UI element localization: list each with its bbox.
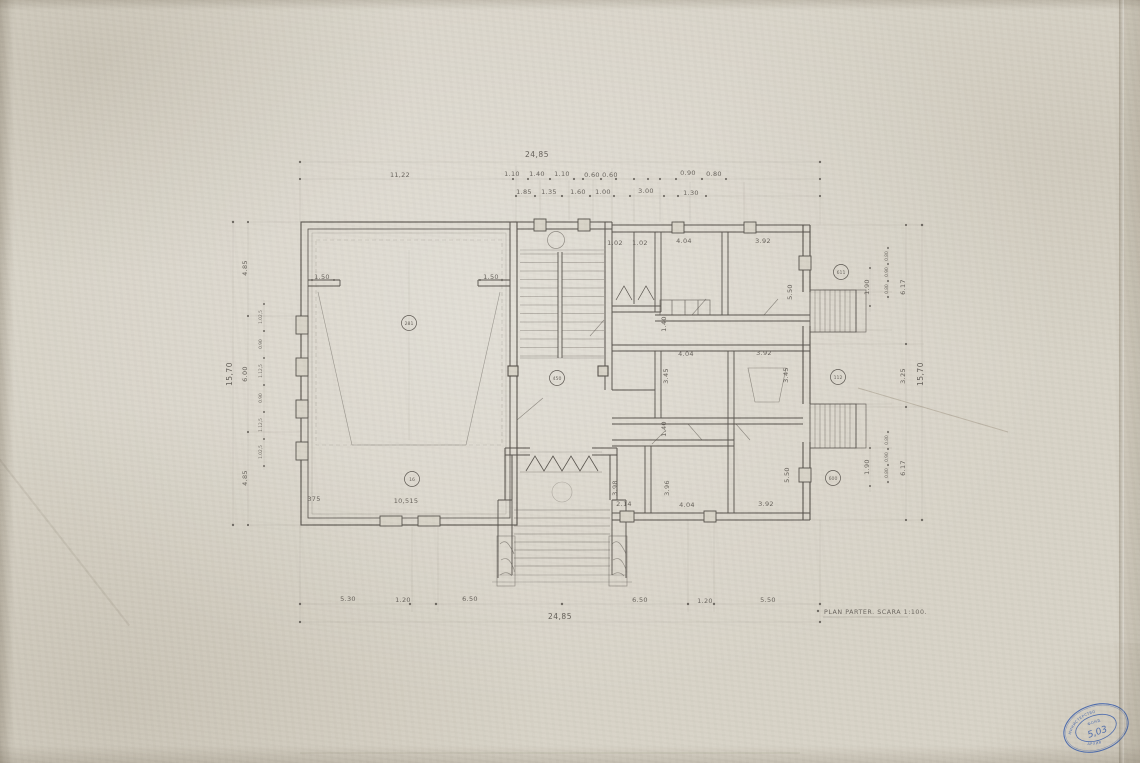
room-label: 1.02 — [632, 239, 648, 247]
dim-label: 4.85 — [241, 470, 249, 486]
room-label: 3.96 — [663, 480, 671, 496]
room-tag: 281 — [405, 321, 414, 327]
room-tag: 450 — [553, 376, 562, 382]
room-label: 5.50 — [786, 284, 794, 300]
dim-label: 1.02,5 — [258, 445, 264, 459]
dim-label: 1.40 — [529, 170, 545, 178]
exterior-stairs — [810, 290, 866, 448]
dim-label: 1.90 — [863, 459, 871, 475]
dim-label: 0.90 — [884, 267, 890, 277]
porch-planters — [497, 536, 627, 586]
dim-label: 4.85 — [241, 260, 249, 276]
room-tag-texts: 281 16 450 611 112 600 — [405, 270, 846, 483]
dim-label: 3.25 — [899, 368, 907, 384]
dim-label: 15,70 — [225, 362, 234, 386]
main-staircase — [520, 232, 604, 359]
dim-label: 24,85 — [548, 612, 572, 621]
room-tag: 112 — [834, 375, 843, 381]
dim-label: 1.20 — [395, 596, 411, 604]
room-label: 3.92 — [758, 500, 774, 508]
room-tag: 600 — [829, 476, 838, 482]
room-label: 3.92 — [755, 237, 771, 245]
scanned-drawing-sheet: 281 16 450 611 112 600 24,85 11,22 1.10 … — [0, 0, 1140, 763]
room-label: 1.40 — [660, 316, 668, 332]
dim-label: 6.17 — [899, 460, 907, 476]
room-label: 10,515 — [394, 497, 419, 505]
dim-label: 5.50 — [760, 596, 776, 604]
room-label: 5.50 — [783, 467, 791, 483]
dim-label: 1.10 — [554, 170, 570, 178]
dimension-lines — [233, 162, 922, 622]
room-label: 4.04 — [676, 237, 692, 245]
room-tag: 16 — [409, 477, 415, 483]
room-tag: 611 — [837, 270, 846, 276]
dim-label: 3.00 — [638, 187, 654, 195]
dim-label: 0.80 — [884, 251, 890, 261]
room-label: 375 — [307, 495, 320, 503]
dim-label: 6.50 — [462, 595, 478, 603]
dim-label: 1.20 — [697, 597, 713, 605]
dim-label: 0.90 — [884, 452, 890, 462]
paper-corner-shadow — [920, 643, 1140, 763]
room-label: 3.98 — [611, 480, 619, 496]
room-label: 3.92 — [756, 349, 772, 357]
right-dimensions: 15,70 6.17 3.25 6.17 0.80 0.90 0.80 0.80… — [863, 251, 925, 478]
dim-label: 1.02,5 — [258, 310, 264, 324]
left-dimensions: 15,70 4.85 6.00 4.85 1.02,5 0.90 1.12,5 … — [225, 260, 264, 486]
room-label: 4.04 — [678, 350, 694, 358]
dim-label: 1.00 — [595, 188, 611, 196]
dim-label: 0.80 — [884, 435, 890, 445]
dim-label: 1.12,5 — [258, 418, 264, 432]
room-labels: 1.02 1.02 4.04 3.92 5.50 4.04 3.92 3.45 … — [307, 237, 794, 509]
dim-label: 1.90 — [863, 279, 871, 295]
dim-label: 6.50 — [632, 596, 648, 604]
right-wing-walls — [590, 225, 810, 520]
dim-label: 1.60 — [570, 188, 586, 196]
room-label: 4.04 — [679, 501, 695, 509]
drawing-caption: PLAN PARTER. SCARA 1:100. — [823, 609, 927, 617]
dim-label: 24,85 — [525, 150, 549, 159]
room-label: 1.40 — [660, 421, 668, 437]
dim-label: 0.60 — [584, 171, 600, 179]
room-label: 2.14 — [616, 500, 632, 508]
guide-lines — [250, 166, 924, 620]
dim-label: 1.10 — [504, 170, 520, 178]
dimension-ticks — [232, 161, 923, 623]
dim-label: 0.80 — [884, 284, 890, 294]
dim-label: 1.30 — [683, 189, 699, 197]
dim-label: 0.80 — [884, 468, 890, 478]
dim-label: 11,22 — [390, 171, 410, 179]
room-label: 1.50 — [314, 273, 330, 281]
room-label: 3.45 — [782, 367, 790, 383]
bottom-dimensions: 5.30 1.20 6.50 6.50 1.20 5.50 24,85 — [340, 595, 776, 621]
dim-label: 0.90 — [258, 339, 264, 349]
caption-text: PLAN PARTER. SCARA 1:100. — [824, 609, 927, 616]
dim-label: 0.90 — [258, 393, 264, 403]
dim-label: 0.90 — [680, 169, 696, 177]
paper-crease-bottom — [300, 752, 800, 754]
room-label: 1.02 — [607, 239, 623, 247]
dim-label: 6.17 — [899, 279, 907, 295]
dim-label: 15,70 — [916, 362, 925, 386]
dim-label: 6.00 — [241, 366, 249, 382]
foyer-columns — [508, 366, 608, 376]
dim-label: 5.30 — [340, 595, 356, 603]
dim-label: 1.85 — [516, 188, 532, 196]
draft-lobby-doors — [517, 398, 602, 472]
vestibule-walls — [505, 222, 617, 500]
dim-label: 1.35 — [541, 188, 557, 196]
room-label: 1.50 — [483, 273, 499, 281]
dim-label: 1.12,5 — [258, 364, 264, 378]
dim-label: 0.80 — [706, 170, 722, 178]
room-label: 3.45 — [662, 368, 670, 384]
dim-label: 0.60 — [602, 171, 618, 179]
top-dimensions: 24,85 11,22 1.10 1.40 1.10 0.60 0.60 0.9… — [390, 150, 722, 197]
paper-crease-line — [858, 388, 1008, 432]
